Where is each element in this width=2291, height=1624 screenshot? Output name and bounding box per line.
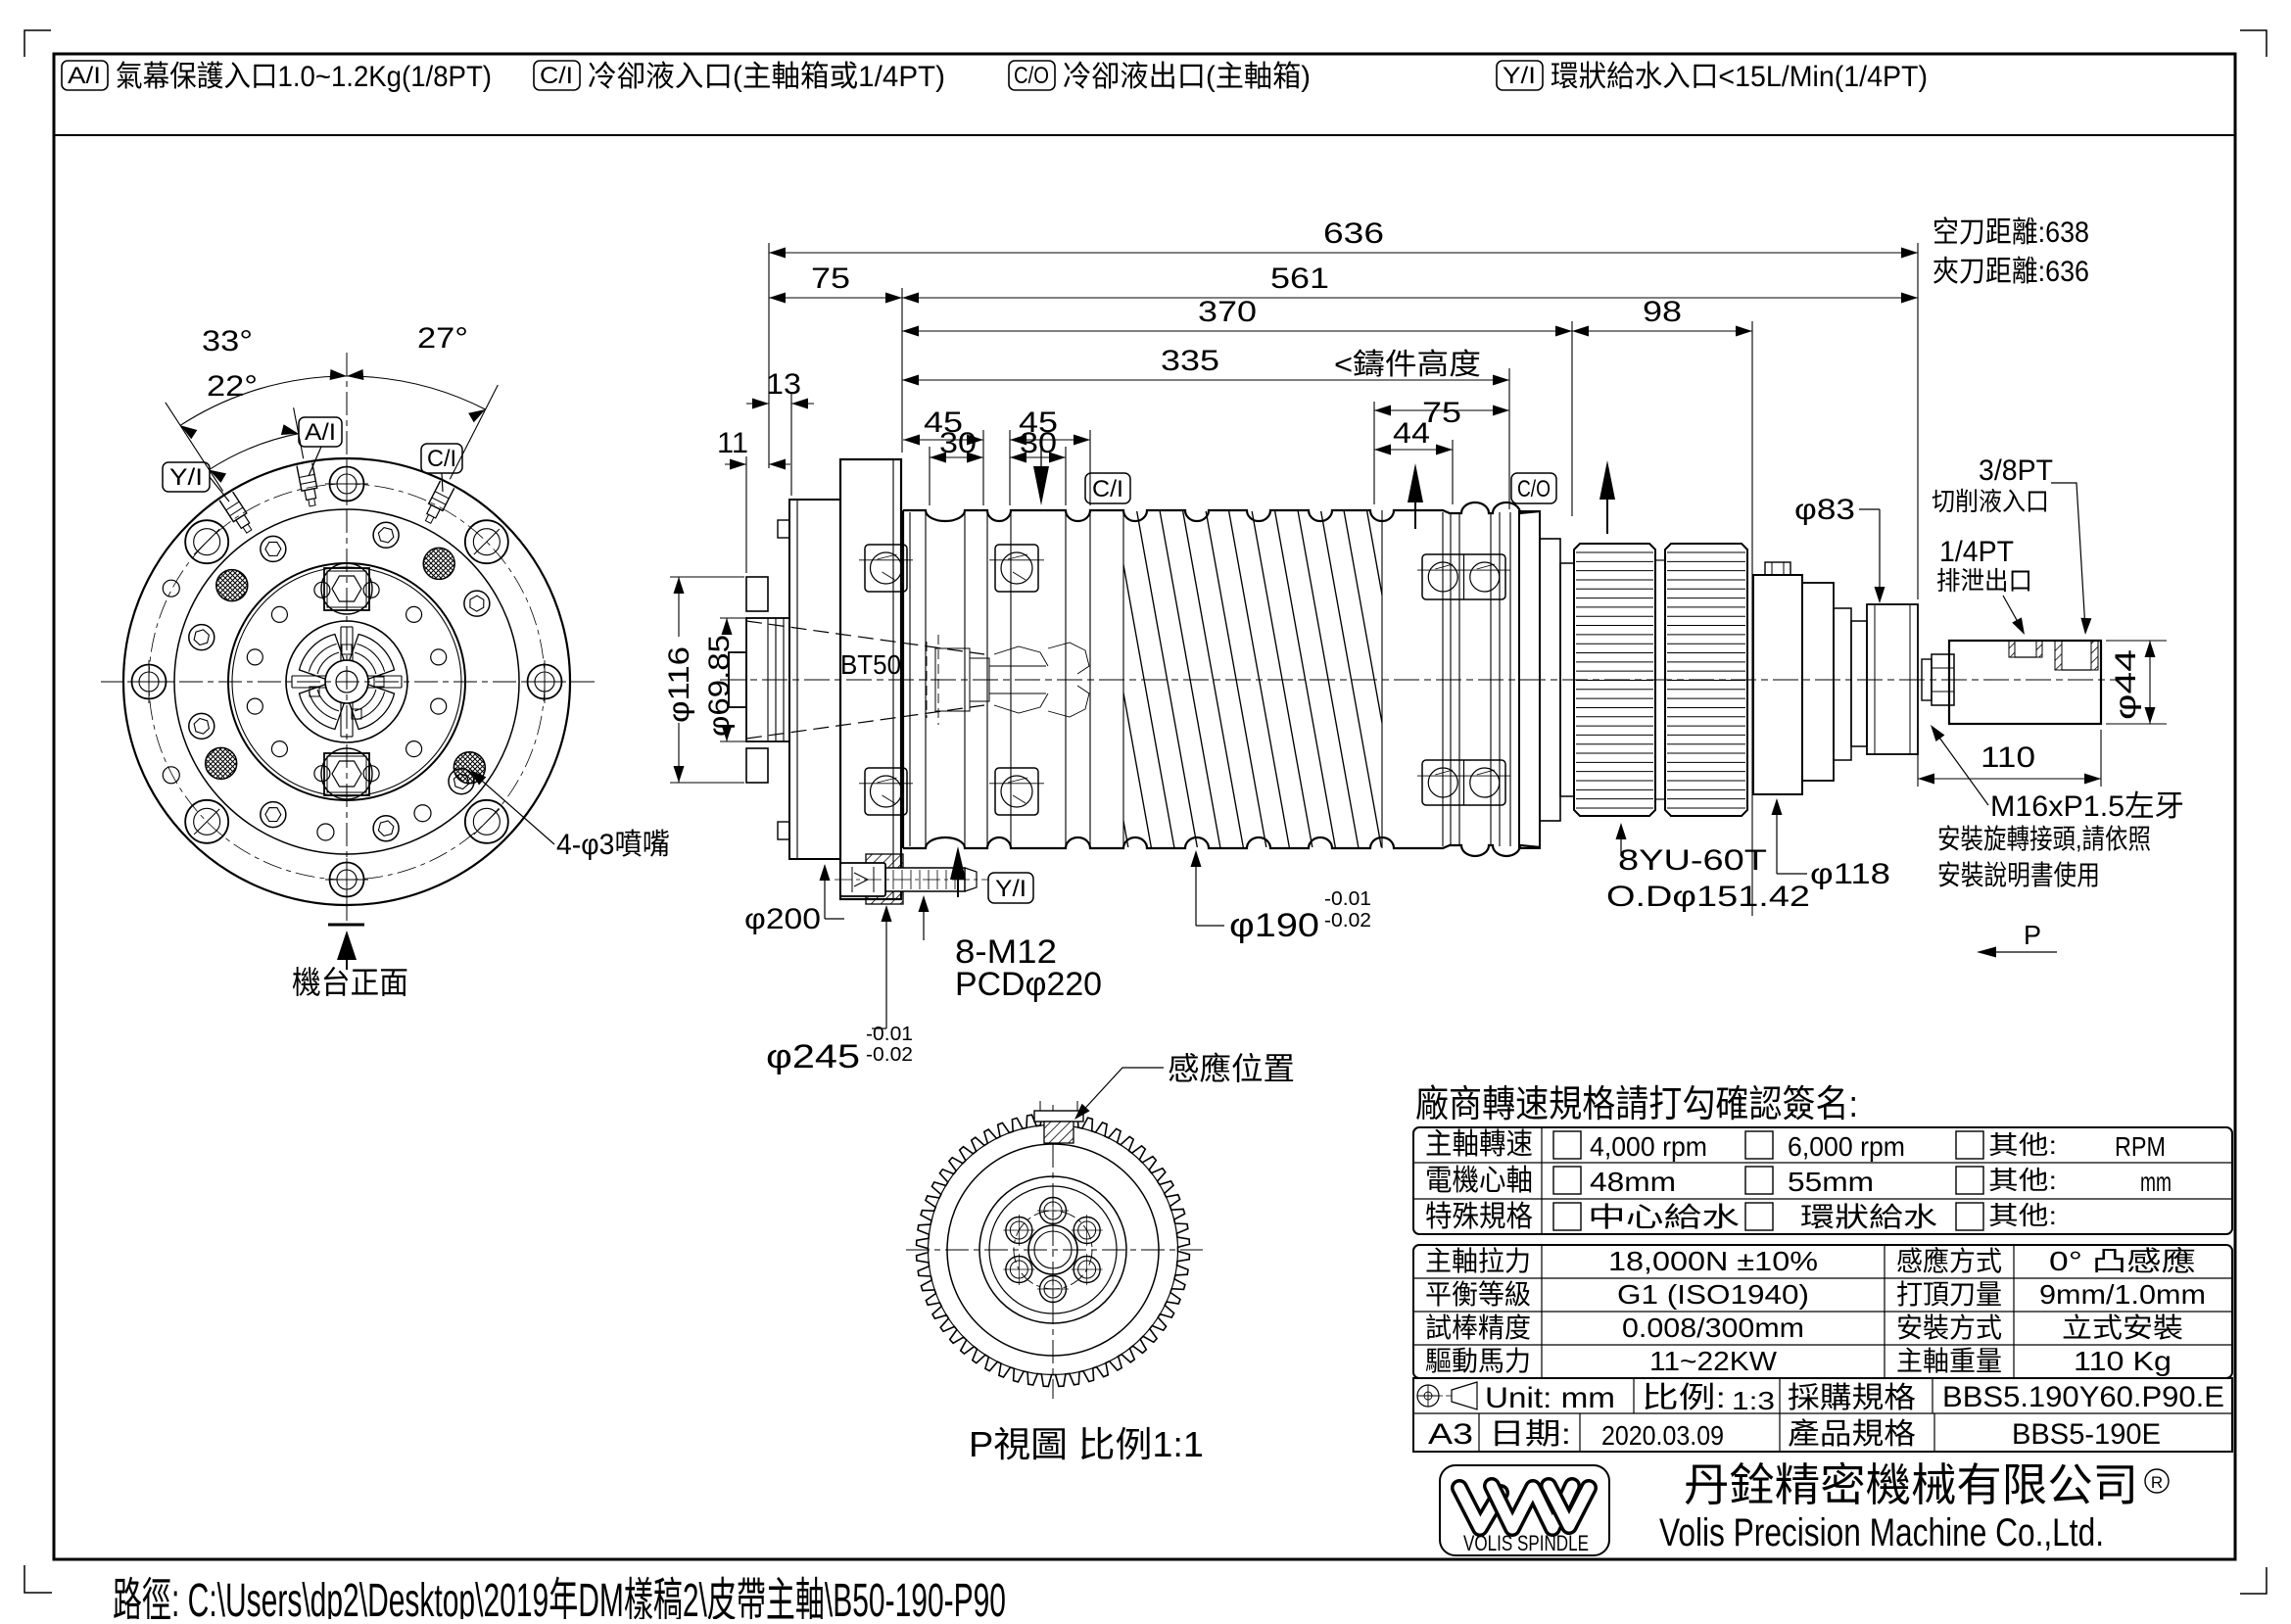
svg-text:55mm: 55mm bbox=[1788, 1167, 1874, 1197]
svg-text:機台正面: 機台正面 bbox=[292, 965, 408, 1000]
svg-text:φ69.85: φ69.85 bbox=[703, 635, 736, 737]
svg-text:φ190: φ190 bbox=[1229, 907, 1319, 944]
svg-text:335: 335 bbox=[1161, 345, 1219, 377]
svg-text:M16xP1.5左牙: M16xP1.5左牙 bbox=[1990, 790, 2184, 823]
svg-text:φ118: φ118 bbox=[1810, 858, 1890, 890]
svg-text:排泄出口: 排泄出口 bbox=[1936, 566, 2032, 596]
svg-text:安裝說明書使用: 安裝說明書使用 bbox=[1937, 860, 2100, 890]
svg-text:φ245: φ245 bbox=[766, 1038, 860, 1075]
svg-text:P: P bbox=[2024, 920, 2041, 950]
svg-text:P視圖 比例1:1: P視圖 比例1:1 bbox=[969, 1424, 1204, 1464]
svg-text:打頂刀量: 打頂刀量 bbox=[1896, 1279, 2002, 1310]
svg-text:感應方式: 感應方式 bbox=[1896, 1246, 2002, 1276]
svg-text:路徑: C:\Users\dp2\Desktop\2019年: 路徑: C:\Users\dp2\Desktop\2019年DM樣稿2\皮帶主軸… bbox=[113, 1575, 1006, 1619]
svg-text:2020.03.09: 2020.03.09 bbox=[1601, 1420, 1724, 1451]
svg-text:立式安裝: 立式安裝 bbox=[2062, 1313, 2183, 1343]
svg-text:空刀距離:638: 空刀距離:638 bbox=[1933, 216, 2089, 249]
svg-text:C/I: C/I bbox=[540, 63, 573, 89]
svg-text:370: 370 bbox=[1198, 296, 1257, 328]
svg-text:主軸重量: 主軸重量 bbox=[1896, 1346, 2002, 1376]
svg-text:主軸轉速: 主軸轉速 bbox=[1425, 1128, 1533, 1161]
svg-text:75: 75 bbox=[811, 263, 850, 295]
svg-text:A/I: A/I bbox=[68, 63, 101, 89]
svg-text:22°: 22° bbox=[207, 370, 258, 403]
svg-text:環狀給水入口<15L/Min(1/4PT): 環狀給水入口<15L/Min(1/4PT) bbox=[1551, 61, 1928, 93]
svg-text:9mm/1.0mm: 9mm/1.0mm bbox=[2039, 1279, 2206, 1310]
svg-text:6,000 rpm: 6,000 rpm bbox=[1788, 1131, 1905, 1162]
svg-text:廠商轉速規格請打勾確認簽名:: 廠商轉速規格請打勾確認簽名: bbox=[1415, 1084, 1858, 1125]
svg-text:電機心軸: 電機心軸 bbox=[1425, 1165, 1533, 1197]
svg-text:主軸拉力: 主軸拉力 bbox=[1425, 1246, 1531, 1276]
svg-text:27°: 27° bbox=[417, 322, 468, 355]
svg-text:氣幕保護入口1.0~1.2Kg(1/8PT): 氣幕保護入口1.0~1.2Kg(1/8PT) bbox=[116, 61, 492, 93]
svg-text:冷卻液入口(主軸箱或1/4PT): 冷卻液入口(主軸箱或1/4PT) bbox=[588, 61, 945, 93]
svg-text:比例:: 比例: bbox=[1642, 1382, 1726, 1414]
svg-text:PCDφ220: PCDφ220 bbox=[955, 966, 1102, 1003]
svg-text:98: 98 bbox=[1643, 296, 1682, 328]
svg-text:Unit: mm: Unit: mm bbox=[1485, 1382, 1615, 1414]
svg-text:VOLIS SPINDLE: VOLIS SPINDLE bbox=[1463, 1531, 1589, 1555]
svg-text:-0.01: -0.01 bbox=[866, 1024, 913, 1045]
svg-text:中心給水: 中心給水 bbox=[1588, 1202, 1740, 1232]
svg-text:安裝旋轉接頭,請依照: 安裝旋轉接頭,請依照 bbox=[1937, 824, 2151, 854]
svg-text:Volis Precision Machine Co.,Lt: Volis Precision Machine Co.,Ltd. bbox=[1659, 1511, 2104, 1554]
svg-text:<鑄件高度: <鑄件高度 bbox=[1334, 349, 1481, 381]
svg-text:夾刀距離:636: 夾刀距離:636 bbox=[1933, 256, 2089, 288]
svg-text:採購規格: 採購規格 bbox=[1788, 1382, 1916, 1414]
svg-text:4-φ3噴嘴: 4-φ3噴嘴 bbox=[556, 829, 670, 861]
svg-text:RPM: RPM bbox=[2115, 1131, 2166, 1162]
svg-text:φ200: φ200 bbox=[744, 903, 821, 935]
svg-text:1:3: 1:3 bbox=[1732, 1386, 1775, 1415]
svg-text:平衡等級: 平衡等級 bbox=[1425, 1279, 1531, 1310]
svg-text:日期:: 日期: bbox=[1489, 1418, 1571, 1451]
svg-text:-0.01: -0.01 bbox=[1324, 888, 1371, 910]
svg-text:A3: A3 bbox=[1428, 1418, 1473, 1451]
svg-text:48mm: 48mm bbox=[1590, 1167, 1676, 1197]
svg-text:A/I: A/I bbox=[305, 419, 336, 446]
svg-text:18,000N ±10%: 18,000N ±10% bbox=[1608, 1246, 1818, 1276]
svg-text:冷卻液出口(主軸箱): 冷卻液出口(主軸箱) bbox=[1063, 61, 1311, 93]
svg-text:產品規格: 產品規格 bbox=[1788, 1418, 1916, 1451]
svg-text:切削液入口: 切削液入口 bbox=[1932, 487, 2049, 516]
svg-text:44: 44 bbox=[1393, 417, 1430, 450]
svg-text:0.008/300mm: 0.008/300mm bbox=[1622, 1313, 1804, 1343]
svg-text:其他:: 其他: bbox=[1988, 1166, 2057, 1195]
svg-text:11: 11 bbox=[717, 427, 748, 459]
svg-text:4,000 rpm: 4,000 rpm bbox=[1590, 1131, 1707, 1162]
svg-text:O.Dφ151.42: O.Dφ151.42 bbox=[1606, 881, 1810, 913]
svg-text:C/O: C/O bbox=[1517, 476, 1551, 502]
svg-text:φ83: φ83 bbox=[1794, 494, 1855, 526]
svg-text:-0.02: -0.02 bbox=[1324, 910, 1371, 931]
svg-text:環狀給水: 環狀給水 bbox=[1800, 1202, 1937, 1232]
svg-text:1/4PT: 1/4PT bbox=[1939, 536, 2014, 568]
svg-text:mm: mm bbox=[2140, 1167, 2172, 1197]
svg-text:110 Kg: 110 Kg bbox=[2074, 1346, 2172, 1376]
svg-text:561: 561 bbox=[1270, 263, 1329, 295]
svg-text:13: 13 bbox=[766, 368, 801, 401]
svg-text:感應位置: 感應位置 bbox=[1168, 1051, 1295, 1086]
svg-text:8YU-60T: 8YU-60T bbox=[1618, 844, 1767, 877]
svg-text:3/8PT: 3/8PT bbox=[1979, 454, 2053, 487]
svg-text:-0.02: -0.02 bbox=[866, 1044, 913, 1066]
svg-text:其他:: 其他: bbox=[1988, 1201, 2057, 1230]
svg-text:30: 30 bbox=[1020, 427, 1057, 459]
svg-text:Y/I: Y/I bbox=[1503, 63, 1536, 89]
svg-text:Y/I: Y/I bbox=[169, 464, 203, 491]
svg-text:BBS5.190Y60.P90.E: BBS5.190Y60.P90.E bbox=[1942, 1381, 2224, 1413]
svg-text:試棒精度: 試棒精度 bbox=[1425, 1313, 1531, 1343]
svg-text:33°: 33° bbox=[202, 325, 253, 358]
svg-text:丹銓精密機械有限公司: 丹銓精密機械有限公司 bbox=[1684, 1459, 2138, 1510]
svg-text:110: 110 bbox=[1981, 741, 2035, 774]
svg-text:R: R bbox=[2151, 1473, 2163, 1492]
svg-text:11~22KW: 11~22KW bbox=[1649, 1346, 1778, 1376]
svg-text:其他:: 其他: bbox=[1988, 1130, 2057, 1160]
svg-text:636: 636 bbox=[1323, 217, 1384, 250]
svg-text:安裝方式: 安裝方式 bbox=[1896, 1313, 2002, 1343]
svg-text:φ116: φ116 bbox=[663, 646, 695, 723]
svg-text:特殊規格: 特殊規格 bbox=[1425, 1201, 1533, 1233]
svg-text:30: 30 bbox=[939, 427, 977, 459]
svg-text:C/I: C/I bbox=[1092, 476, 1123, 502]
svg-text:BBS5-190E: BBS5-190E bbox=[2012, 1418, 2161, 1451]
svg-text:C/I: C/I bbox=[427, 446, 456, 472]
svg-text:BT50: BT50 bbox=[840, 649, 901, 680]
svg-text:C/O: C/O bbox=[1014, 63, 1049, 89]
svg-text:Y/I: Y/I bbox=[995, 876, 1026, 902]
svg-text:0° 凸感應: 0° 凸感應 bbox=[2049, 1246, 2196, 1276]
svg-text:驅動馬力: 驅動馬力 bbox=[1425, 1346, 1531, 1376]
svg-text:G1 (ISO1940): G1 (ISO1940) bbox=[1617, 1279, 1809, 1310]
svg-text:φ44: φ44 bbox=[2110, 649, 2142, 720]
